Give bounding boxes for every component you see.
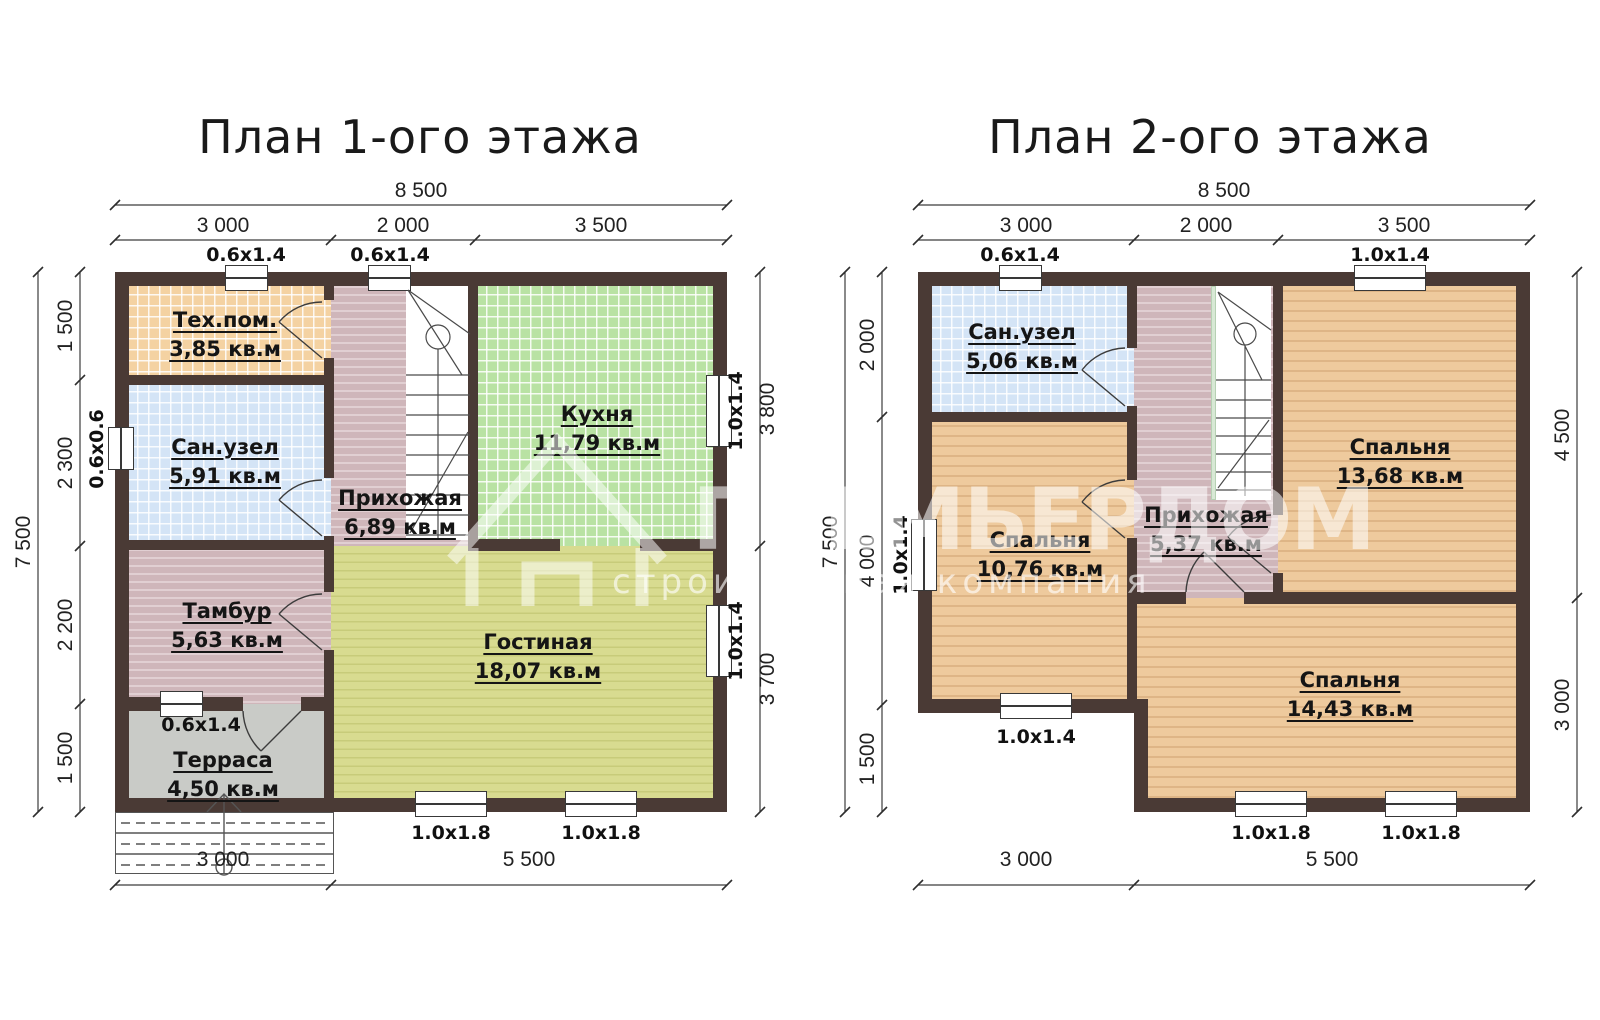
floorplan-sheet: { "plan1": { "title": "План 1-ого этажа"… (0, 0, 1600, 1020)
watermark-tagline: строительная компания (612, 562, 1152, 602)
watermark-brand: ПРЕМЬЕРДОМ (692, 470, 1374, 570)
